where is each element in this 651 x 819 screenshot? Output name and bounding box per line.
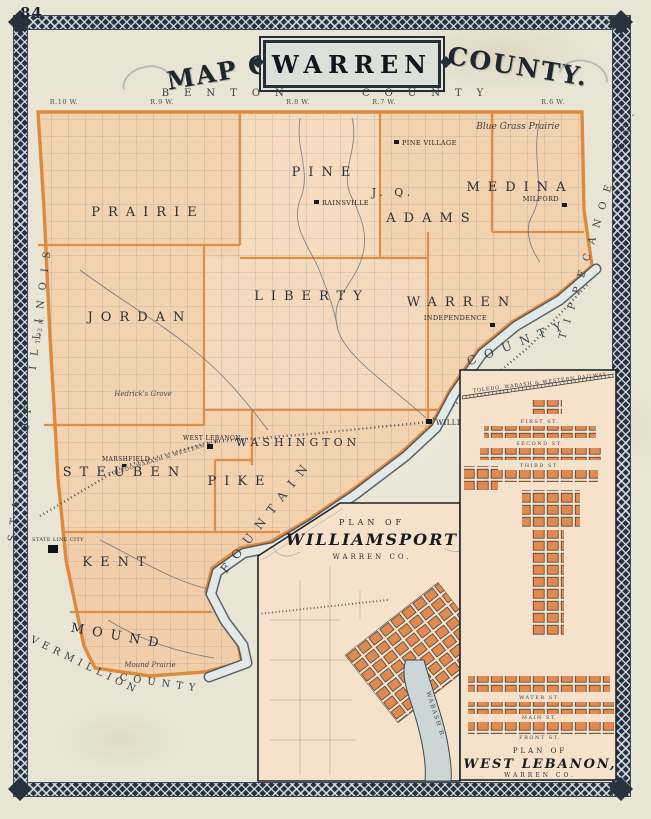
town-marker [122, 464, 126, 467]
town-blocks [484, 470, 598, 482]
range-label: R.8 W. [286, 98, 310, 106]
township-label-jordan: JORDAN [86, 310, 193, 325]
town-label-state-line-city: STATE LINE CITY [32, 537, 84, 543]
range-label: R.9 W. [150, 98, 174, 106]
township-label-jq: J. Q. [371, 186, 415, 199]
town-blocks [468, 676, 610, 692]
range-label: R.6 W. [541, 98, 565, 106]
town-label-marshfield: MARSHFIELD [102, 456, 150, 463]
williamsport-plan-of: PLAN OF [339, 518, 405, 527]
street-label-third: THIRD ST. [520, 463, 560, 469]
county-map-canvas: TOLEDO WABASH & WESTERN R.W. BENTON COUN… [0, 0, 651, 819]
west-lebanon-inset: TOLEDO, WABASH & WESTERN RAILWAY FIRST S… [460, 370, 617, 780]
township-label-kent: KENT [82, 555, 153, 570]
town-marker [490, 323, 495, 327]
williamsport-title: WILLIAMSPORT [286, 530, 458, 549]
range-label: R.10 W. [50, 98, 78, 106]
street-label-main: MAIN ST. [522, 715, 558, 721]
township-label-pike: PIKE [207, 474, 272, 489]
williamsport-county: WARREN CO. [333, 553, 412, 561]
street-label-second: SECOND ST. [516, 441, 564, 447]
township-label-medina: MEDINA [466, 180, 573, 195]
west-lebanon-title: WEST LEBANON, [463, 757, 616, 772]
williamsport-inset: WABASH R. PLAN OF WILLIAMSPORT WARREN CO… [258, 503, 491, 781]
township-label-liberty: LIBERTY [254, 289, 370, 304]
town-marker [562, 203, 567, 207]
town-marker [394, 140, 399, 144]
town-blocks [484, 426, 596, 438]
range-labels: R.10 W. R.9 W. R.8 W. R.7 W. R.6 W. [50, 98, 565, 106]
atlas-page: 84 MAP OF WARREN COUNTY. [0, 0, 651, 819]
west-lebanon-plan-of: PLAN OF [513, 747, 567, 755]
mound-prairie-label: Mound Prairie [123, 661, 175, 669]
township-label-washington: WASHINGTON [236, 436, 361, 449]
town-blocks [468, 702, 614, 714]
township-label-adams: ADAMS [385, 211, 477, 226]
town-marker [426, 419, 432, 424]
town-label-milford: MILFORD [523, 195, 559, 203]
town-marker [48, 545, 58, 553]
town-blocks [532, 530, 564, 636]
range-label: R.7 W. [372, 98, 396, 106]
township-label-steuben: STEUBEN [63, 465, 187, 480]
township-label-pine: PINE [292, 165, 359, 180]
town-blocks [464, 466, 498, 490]
blue-grass-prairie-label: Blue Grass Prairie [475, 122, 560, 132]
state-of-illinois-label: STATE OF ILLINOIS [7, 241, 55, 542]
hedricks-grove-label: Hedrick's Grove [113, 390, 171, 398]
town-label-independence: INDEPENDENCE [424, 314, 487, 322]
street-label-first: FIRST ST. [521, 419, 560, 425]
west-lebanon-county: WARREN CO. [504, 772, 576, 779]
street-label-water: WATER ST. [519, 695, 561, 701]
township-label-prairie: PRAIRIE [91, 205, 204, 220]
town-marker [207, 444, 213, 449]
street-label-front: FRONT ST. [519, 735, 561, 741]
town-blocks [532, 400, 562, 414]
town-marker [314, 200, 319, 204]
benton-county-label: BENTON COUNTY [162, 88, 499, 99]
town-label-west-lebanon: WEST LEBANON [183, 435, 241, 442]
town-blocks [522, 490, 580, 528]
town-label-rainsville: RAINSVILLE [322, 199, 369, 207]
town-blocks [468, 722, 614, 734]
town-label-pine-village: PINE VILLAGE [402, 139, 457, 147]
township-label-warren: WARREN [407, 295, 518, 310]
town-blocks [480, 448, 602, 460]
